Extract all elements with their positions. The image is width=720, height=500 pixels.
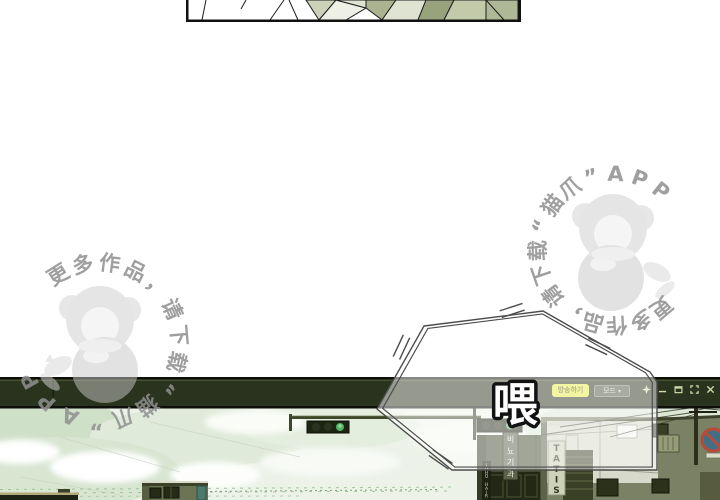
watermark-char: 多 — [626, 303, 657, 339]
minimize-icon[interactable] — [658, 385, 667, 394]
broadcast-button[interactable]: 방송하기 — [552, 384, 589, 397]
watermark-char: 载 — [160, 348, 194, 376]
watermark-char: 爪 — [552, 169, 586, 206]
window-controls — [642, 385, 715, 394]
watermark-char: ” — [581, 164, 601, 191]
sign-urology: 비뇨기과 — [503, 432, 518, 480]
watermark-char: 请 — [534, 279, 571, 314]
watermark-char: 下 — [524, 260, 559, 290]
page: { "watermark": { "text": "更多作品，请下载“猫爪”AP… — [0, 0, 720, 500]
mode-label: 모드 — [603, 387, 616, 395]
ac-unit — [658, 435, 679, 452]
pin-icon[interactable] — [642, 385, 651, 394]
watermark-char: “ — [527, 216, 554, 237]
maximize-icon[interactable] — [690, 385, 699, 394]
close-icon[interactable] — [706, 385, 715, 394]
sign-tatis-text: TATIS — [553, 444, 560, 496]
sign-tatis: TATIS — [548, 441, 565, 496]
building-right: TATIS — [541, 415, 720, 500]
watermark-char: 作 — [97, 246, 121, 278]
watermark-char: 品 — [120, 252, 152, 288]
watermark-char: 多 — [69, 247, 96, 281]
mode-dropdown[interactable]: 모드▾ — [594, 385, 630, 397]
titlebar-controls: 방송하기 모드▾ — [0, 377, 720, 408]
watermark-char: A — [607, 162, 624, 187]
watermark-char: 载 — [522, 240, 552, 261]
stream-window-panel: TATIS 비뇨기과 JUHO HAIR — [0, 377, 720, 500]
watermark-char: 更 — [644, 290, 679, 326]
watermark-char: 品 — [579, 306, 607, 341]
restore-icon[interactable] — [674, 385, 683, 394]
sign-hair: JUHO HAIR — [482, 461, 491, 500]
watermark-char: P — [628, 165, 651, 193]
chevron-down-icon: ▾ — [618, 388, 621, 395]
watermark-char: 下 — [164, 323, 196, 347]
watermark-char: ， — [553, 295, 587, 332]
mascot-icon — [548, 180, 678, 320]
top-panel-art — [186, 0, 521, 22]
watermark-char: 更 — [41, 256, 75, 293]
watermark-char: 猫 — [534, 187, 571, 222]
building-urology: 비뇨기과 JUHO HAIR — [477, 432, 541, 500]
watermark-char: 请 — [155, 293, 191, 325]
top-comic-panel — [186, 0, 521, 22]
watermark-char: 作 — [606, 310, 629, 341]
watermark-char: ， — [139, 268, 175, 304]
building-small — [142, 481, 208, 500]
balcony — [563, 450, 593, 500]
watermark-char: P — [647, 177, 674, 205]
